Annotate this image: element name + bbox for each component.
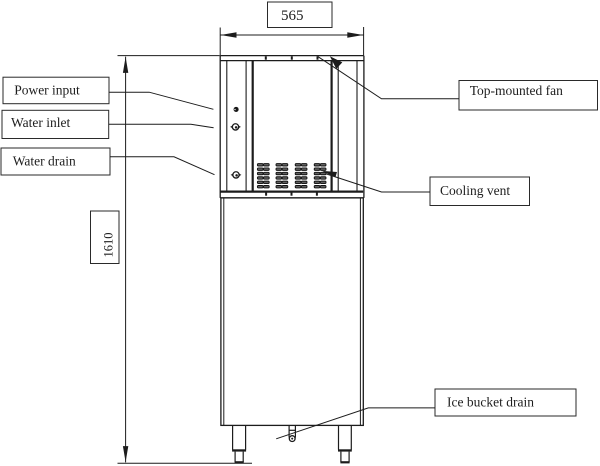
svg-text:Top-mounted fan: Top-mounted fan xyxy=(470,83,563,98)
svg-text:Water inlet: Water inlet xyxy=(11,115,71,130)
svg-text:565: 565 xyxy=(281,8,304,24)
svg-text:Water drain: Water drain xyxy=(13,154,76,169)
svg-text:1610: 1610 xyxy=(102,233,116,258)
svg-text:Cooling vent: Cooling vent xyxy=(440,183,510,198)
svg-text:Power input: Power input xyxy=(14,83,80,98)
svg-text:Ice bucket drain: Ice bucket drain xyxy=(447,394,534,409)
